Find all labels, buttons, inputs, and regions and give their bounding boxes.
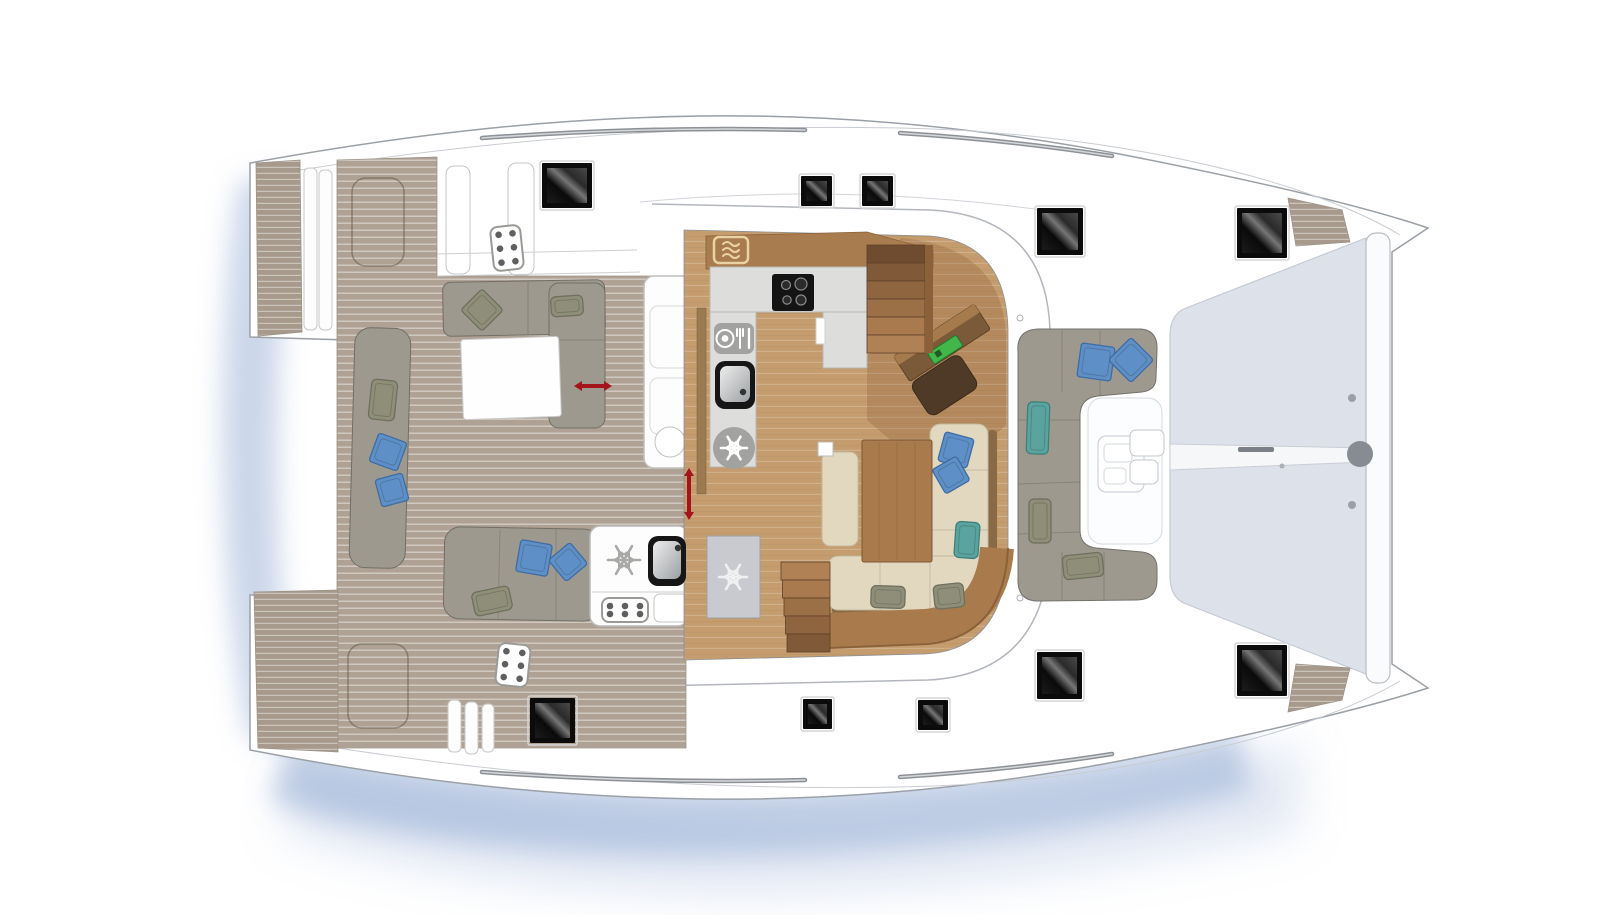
deck-hatch <box>540 161 594 210</box>
pillow-body <box>1026 402 1050 455</box>
stair-step <box>867 299 925 317</box>
catamaran-deck-plan <box>0 0 1600 915</box>
keypad-dot <box>607 611 614 618</box>
olive-pillow <box>933 582 965 609</box>
cooktop <box>772 274 814 311</box>
keypad-body <box>490 225 524 272</box>
keypad-dot <box>622 603 629 610</box>
olive-pillow <box>368 379 398 421</box>
mast-foot <box>1130 430 1164 456</box>
transom-step <box>465 702 478 754</box>
pillow-body <box>871 585 906 608</box>
keypad-body <box>602 598 648 622</box>
burner <box>796 295 806 305</box>
dining-bench-small <box>822 452 858 546</box>
transom-step <box>448 700 461 752</box>
sink <box>648 536 686 586</box>
cooktop-body <box>772 274 814 311</box>
keypad-panel <box>495 642 531 687</box>
stair-step <box>867 281 925 299</box>
keypad-dot <box>637 603 644 610</box>
pillow-body <box>368 379 398 421</box>
burner <box>782 281 791 290</box>
sink-basin <box>720 366 750 402</box>
olive-pillow <box>550 295 583 317</box>
stair-step <box>867 317 925 335</box>
hatch-glass <box>1042 213 1078 250</box>
hatch-glass <box>1042 657 1077 694</box>
transom-step <box>304 168 317 330</box>
hatch-glass <box>808 704 827 724</box>
burner <box>795 278 807 290</box>
mast-foot <box>1130 460 1158 484</box>
pillow-body <box>954 521 980 559</box>
teal-pillow <box>1026 402 1050 455</box>
table-support <box>818 442 833 456</box>
deck-hatch <box>801 697 834 731</box>
pillow-body <box>1029 499 1051 543</box>
pillow-body <box>515 539 552 576</box>
deck-hatch <box>916 698 950 732</box>
stair-step <box>787 634 830 652</box>
olive-pillow <box>1062 552 1104 580</box>
swim-platform-bottom <box>254 590 338 752</box>
hatch-glass <box>535 703 570 738</box>
coachroof-pillar <box>446 166 470 274</box>
sliding-door-track <box>697 308 706 494</box>
wetbar-tray <box>654 594 688 622</box>
teal-pillow <box>954 521 980 559</box>
deck-hatch <box>799 174 834 208</box>
hatch-glass <box>1242 650 1282 691</box>
plate-glyph <box>722 335 729 342</box>
blue-pillow <box>1077 343 1115 381</box>
olive-pillow <box>1029 499 1051 543</box>
dishwasher-icon <box>714 323 754 354</box>
sink <box>715 361 755 409</box>
swim-platform-top <box>256 160 302 336</box>
stair-step <box>867 335 925 353</box>
aft-table <box>461 336 562 419</box>
faucet <box>675 545 681 551</box>
hatch-glass <box>1242 213 1282 253</box>
tramp-dot <box>1280 464 1285 469</box>
stair-step <box>867 245 925 263</box>
keypad-dot <box>637 611 644 618</box>
keypad-panel <box>490 225 524 272</box>
pillow-body <box>1062 552 1104 580</box>
deck-hatch <box>1035 650 1084 701</box>
stair-step <box>867 263 925 281</box>
stair-step <box>783 580 831 598</box>
bowsprit-ring <box>1347 441 1373 467</box>
transom-step <box>319 170 332 330</box>
hatch-glass <box>867 181 888 201</box>
keypad-dot <box>622 611 629 618</box>
burner <box>783 296 791 304</box>
snowflake-icon <box>713 427 755 469</box>
stair-wall <box>925 245 933 353</box>
olive-pillow <box>871 585 906 608</box>
bowsprit-fitting <box>1238 447 1274 452</box>
stair-step <box>786 616 831 634</box>
faucet <box>740 389 746 395</box>
hatch-glass <box>547 168 587 203</box>
stairs <box>867 245 933 353</box>
transom-step <box>482 704 494 752</box>
stair-step <box>781 562 830 580</box>
tramp-dot <box>1348 501 1356 509</box>
deck-hatch <box>1235 206 1289 260</box>
deck-hatch <box>1035 206 1085 257</box>
hatch-glass <box>806 181 827 201</box>
keypad-panel <box>602 598 648 622</box>
tramp-dot <box>1348 394 1356 402</box>
keypad-dot <box>607 603 614 610</box>
stair-step <box>784 598 830 616</box>
blue-pillow <box>515 539 552 576</box>
hatch-glass <box>923 705 943 725</box>
deck-hatch <box>1235 643 1289 698</box>
deck-hatch <box>528 696 577 745</box>
stairs <box>781 562 830 652</box>
deck-hatch <box>860 174 895 208</box>
keypad-body <box>495 642 531 687</box>
